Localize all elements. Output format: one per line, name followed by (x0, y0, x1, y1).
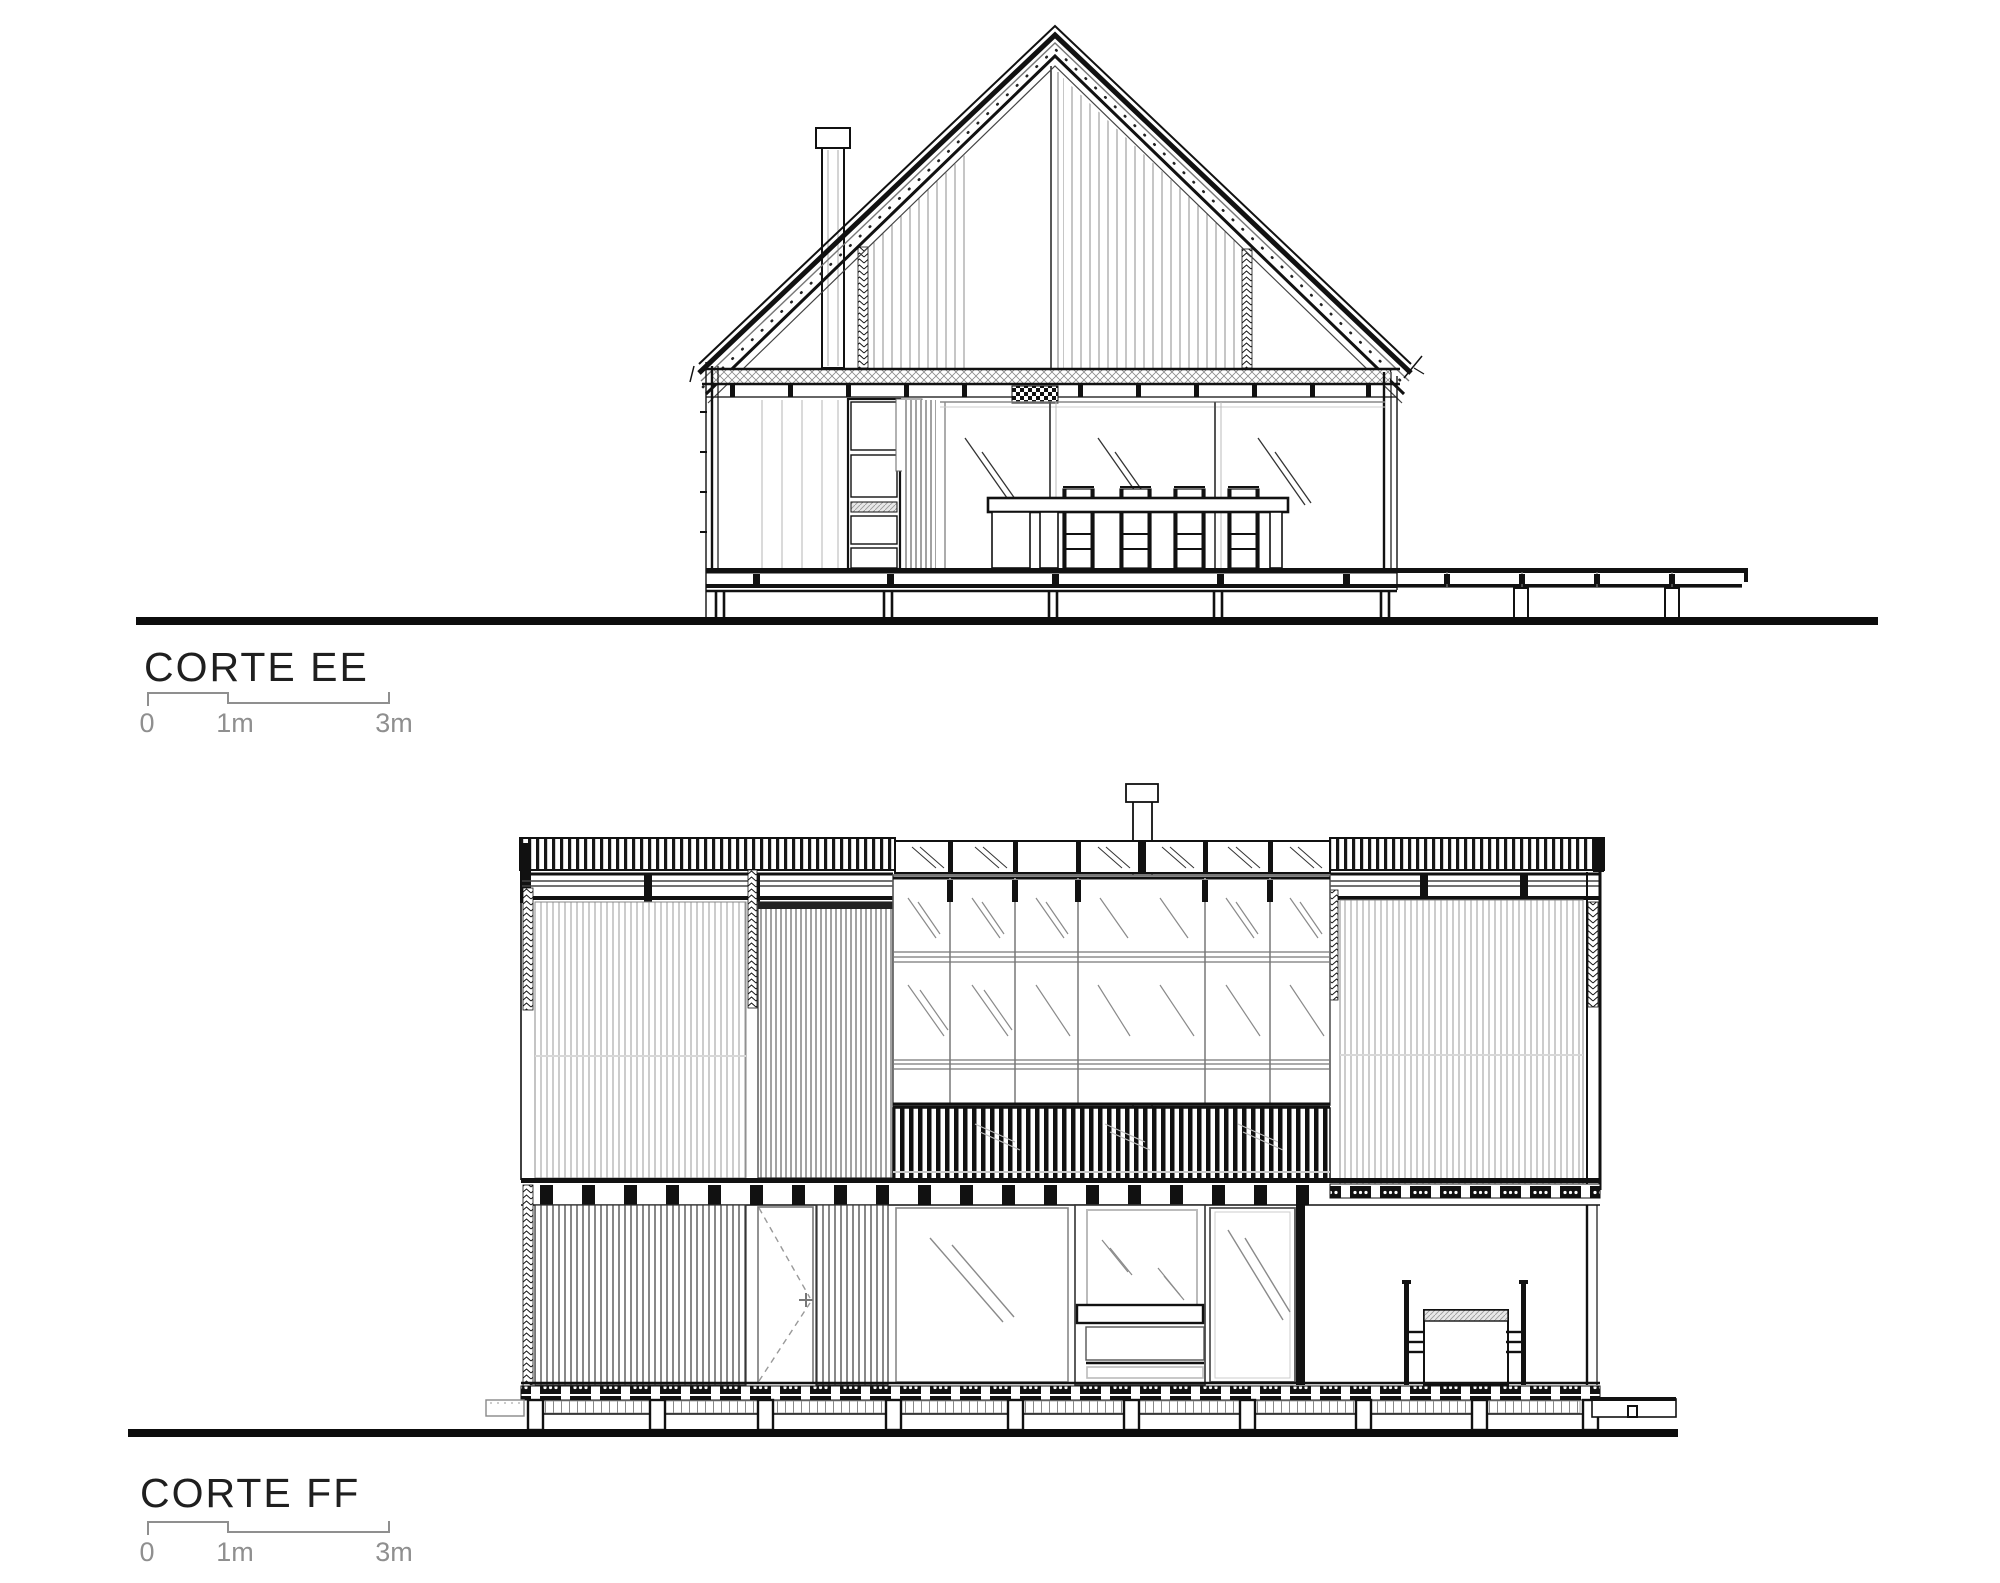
ridge-post (1051, 66, 1058, 368)
footings-ee (716, 591, 1389, 618)
scale-label-0-ee: 0 (139, 708, 154, 739)
scale-label-3m-ff: 3m (375, 1537, 413, 1568)
sloped-glazing-band (895, 841, 1330, 873)
ground-line-ff (128, 1429, 1678, 1437)
ground-line-ee (136, 617, 1878, 625)
ground-glass-panel (896, 1208, 1068, 1382)
scale-label-1m-ff: 1m (216, 1537, 254, 1568)
upper-glazing-bay (893, 875, 1330, 1105)
siding-panel-b (758, 902, 893, 1178)
kitchen-counter (1077, 1305, 1203, 1323)
scalebar-ff: 0 1m 3m (147, 1521, 407, 1567)
ground-glass-door (1210, 1208, 1295, 1382)
porch-chair-left (1402, 1280, 1424, 1385)
ground-floor-ff (523, 1185, 1597, 1390)
ground-siding-strip (816, 1205, 888, 1385)
entry-door (758, 1207, 813, 1383)
gable-roof (690, 26, 1424, 403)
interior-siding-strip (902, 400, 936, 568)
ground-siding-left (535, 1205, 746, 1385)
ceiling-band (702, 369, 1400, 403)
siding-panel-a (535, 902, 746, 1178)
left-step (486, 1400, 524, 1416)
sections-linework (0, 0, 2000, 1583)
architectural-sections-sheet: CORTE EE 0 1m 3m CORTE FF 0 1m 3m (0, 0, 2000, 1583)
porch (1296, 1205, 1597, 1385)
corte-ff-drawing (128, 784, 1678, 1437)
scale-label-0-ff: 0 (139, 1537, 154, 1568)
kitchen-window-unit (1075, 1205, 1205, 1385)
floor-structure-ee (706, 568, 1397, 618)
corte-ee-drawing (136, 26, 1878, 625)
dining-set (988, 487, 1288, 568)
porch-chair-right (1506, 1280, 1528, 1385)
scale-label-1m-ee: 1m (216, 708, 254, 739)
interior-wall-lines (762, 400, 838, 568)
title-corte-ee: CORTE EE (144, 644, 369, 691)
scalebar-ee: 0 1m 3m (147, 692, 407, 738)
porch-table (1424, 1310, 1508, 1385)
title-corte-ff: CORTE FF (140, 1470, 360, 1517)
base-structure-ff (486, 1383, 1676, 1430)
siding-panel-c (1340, 900, 1583, 1190)
intermediate-floor-band (521, 1178, 1600, 1205)
right-step (1592, 1399, 1676, 1417)
balcony-railing (893, 1107, 1330, 1180)
ceiling-blocking-detail (1012, 386, 1058, 403)
scale-label-3m-ee: 3m (375, 708, 413, 739)
deck-ee (1397, 568, 1748, 618)
